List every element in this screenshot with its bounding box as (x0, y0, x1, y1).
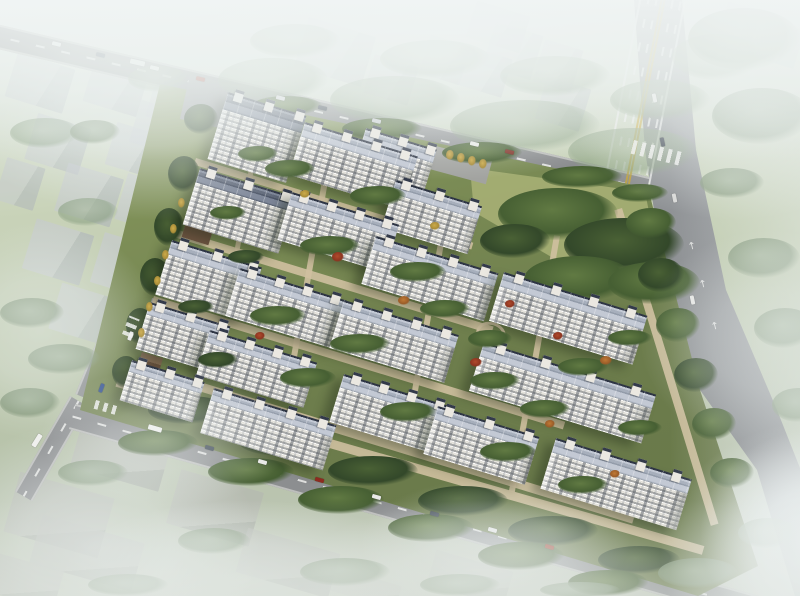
fog-patch (40, 368, 290, 508)
tree-cluster (430, 222, 440, 230)
tree-cluster (553, 332, 563, 340)
tree-cluster (250, 306, 306, 326)
tree-cluster (420, 300, 470, 318)
tree-cluster (480, 442, 536, 462)
tree-cluster (505, 300, 515, 308)
tree-cluster (178, 300, 214, 314)
tree-cluster (255, 332, 265, 340)
tree-cluster (330, 334, 390, 354)
tree-cluster (380, 402, 436, 422)
tree-cluster (198, 352, 238, 368)
tree-cluster (520, 400, 570, 418)
tree-cluster (162, 250, 169, 260)
tree-cluster (470, 372, 520, 390)
tree-cluster (228, 250, 264, 264)
tree-cluster (300, 236, 360, 256)
top-haze (0, 0, 800, 160)
tree-cluster (600, 356, 612, 365)
tree-cluster (390, 262, 446, 282)
tree-cluster (468, 330, 512, 348)
tree-cluster (398, 296, 410, 305)
tree-cluster (610, 470, 620, 478)
tree-cluster (545, 420, 555, 428)
bottom-haze (0, 501, 800, 596)
tree-cluster (480, 224, 550, 258)
tree-cluster (332, 252, 344, 262)
aerial-rendering: ↑↑↑ (0, 0, 800, 596)
tree-cluster (170, 224, 177, 234)
tree-cluster (470, 358, 482, 367)
